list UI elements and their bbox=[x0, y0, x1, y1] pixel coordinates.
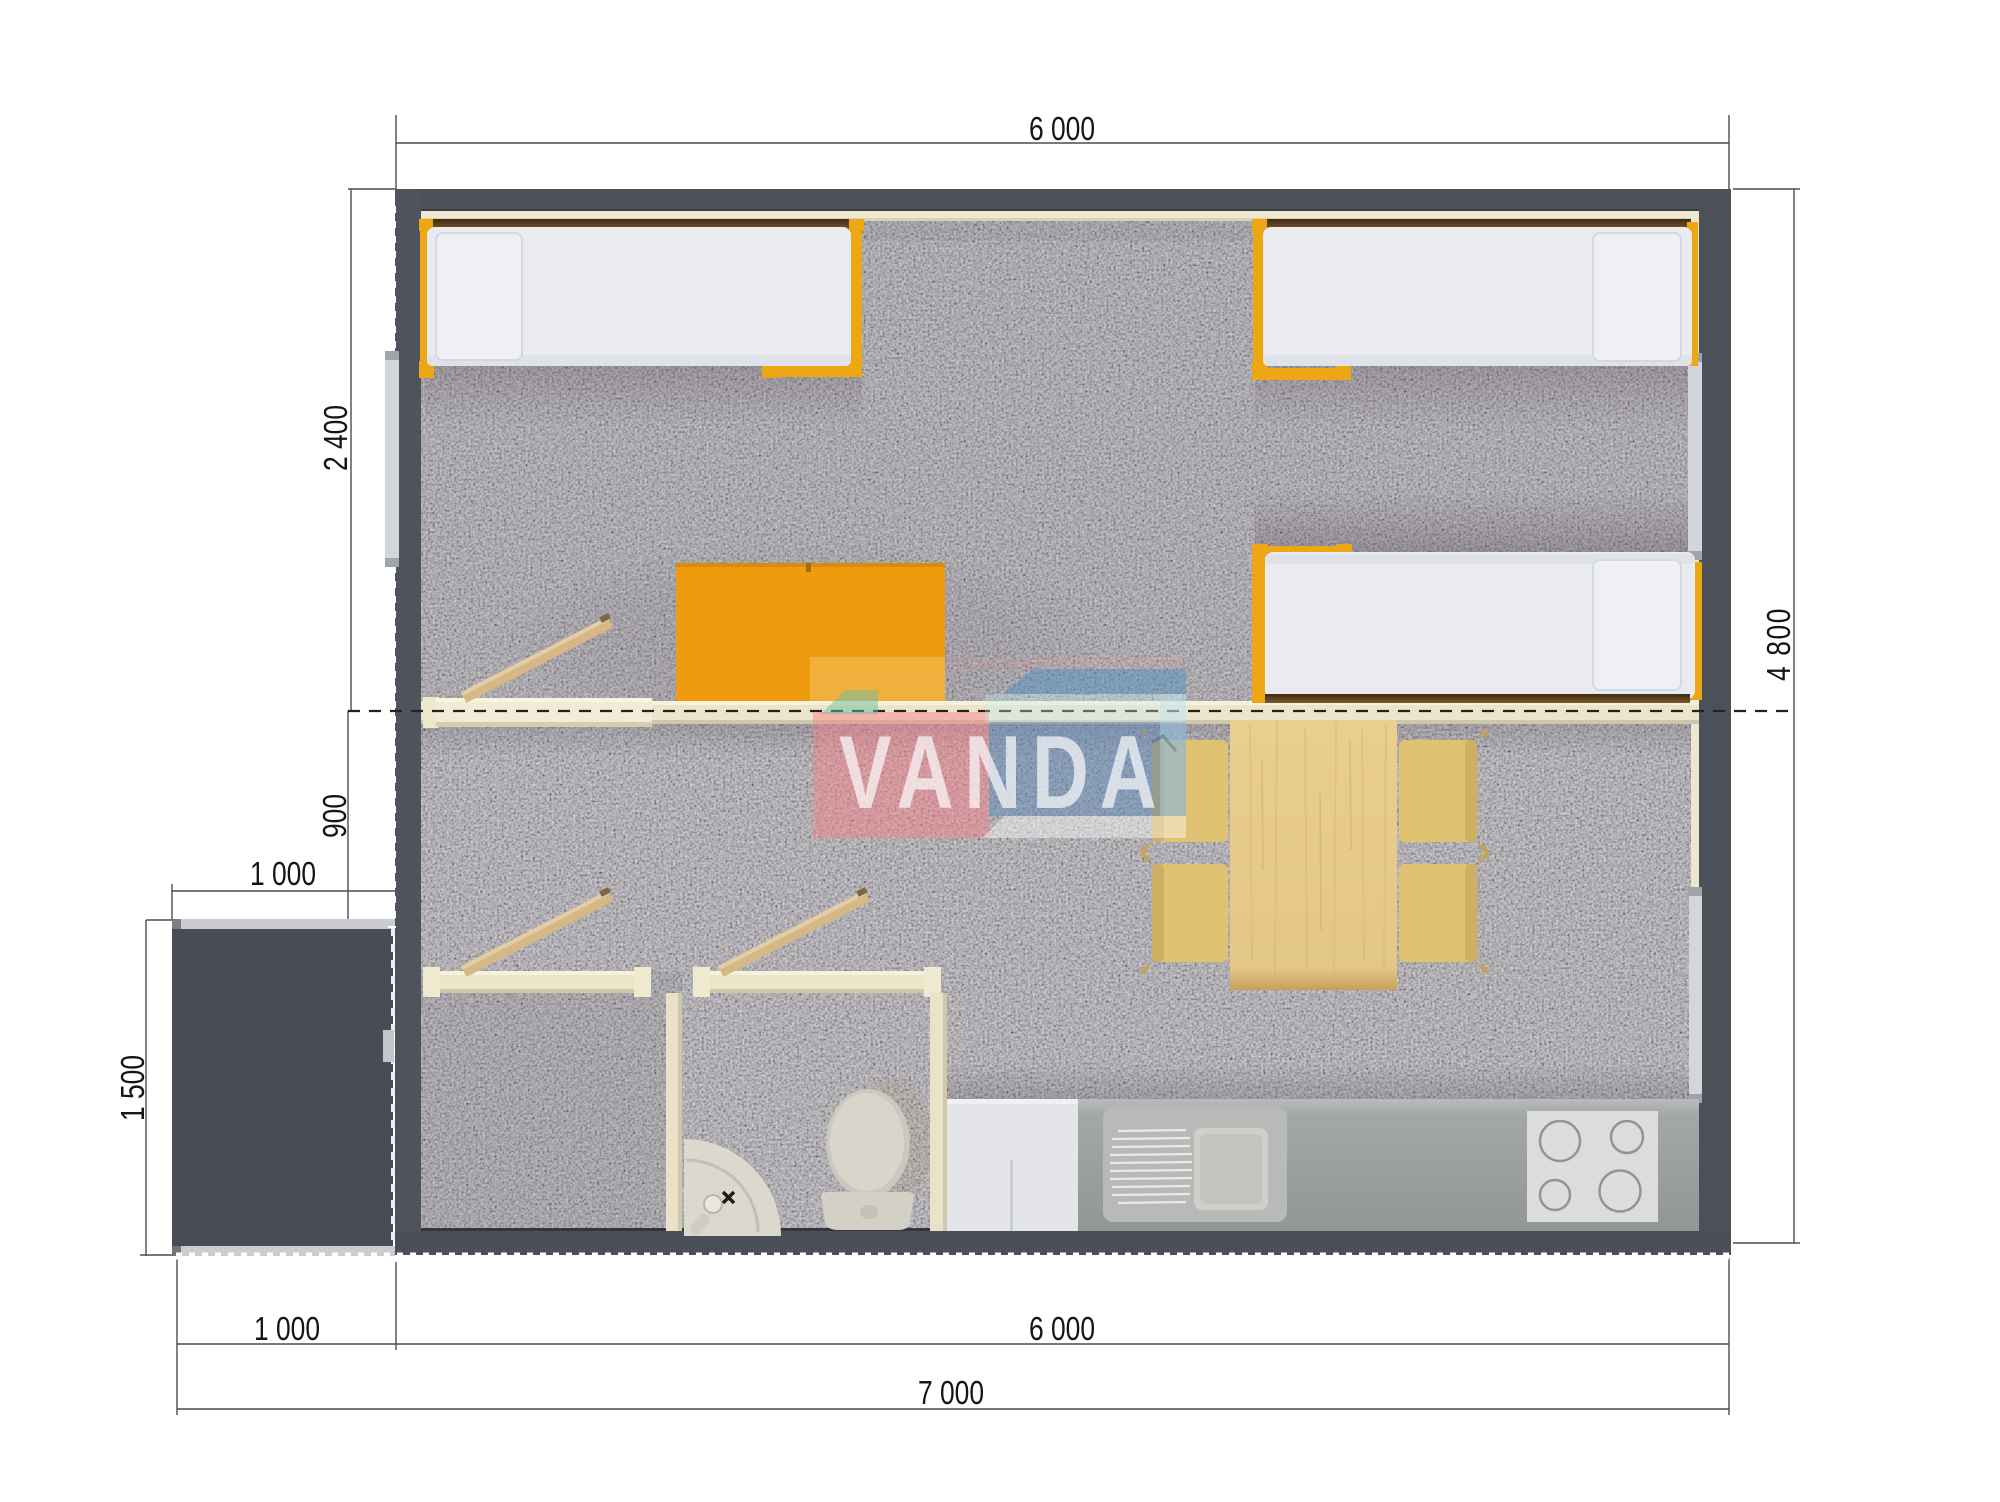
svg-text:1 500: 1 500 bbox=[115, 1055, 151, 1121]
svg-text:1 000: 1 000 bbox=[250, 856, 316, 892]
svg-text:900: 900 bbox=[317, 794, 353, 838]
svg-text:VANDA: VANDA bbox=[839, 713, 1167, 830]
svg-text:7 000: 7 000 bbox=[918, 1375, 984, 1411]
svg-text:1 000: 1 000 bbox=[254, 1311, 320, 1347]
svg-text:6 000: 6 000 bbox=[1029, 1311, 1095, 1347]
svg-text:6 000: 6 000 bbox=[1029, 111, 1095, 147]
svg-text:4 800: 4 800 bbox=[1761, 607, 1797, 681]
svg-text:2 400: 2 400 bbox=[318, 405, 354, 471]
